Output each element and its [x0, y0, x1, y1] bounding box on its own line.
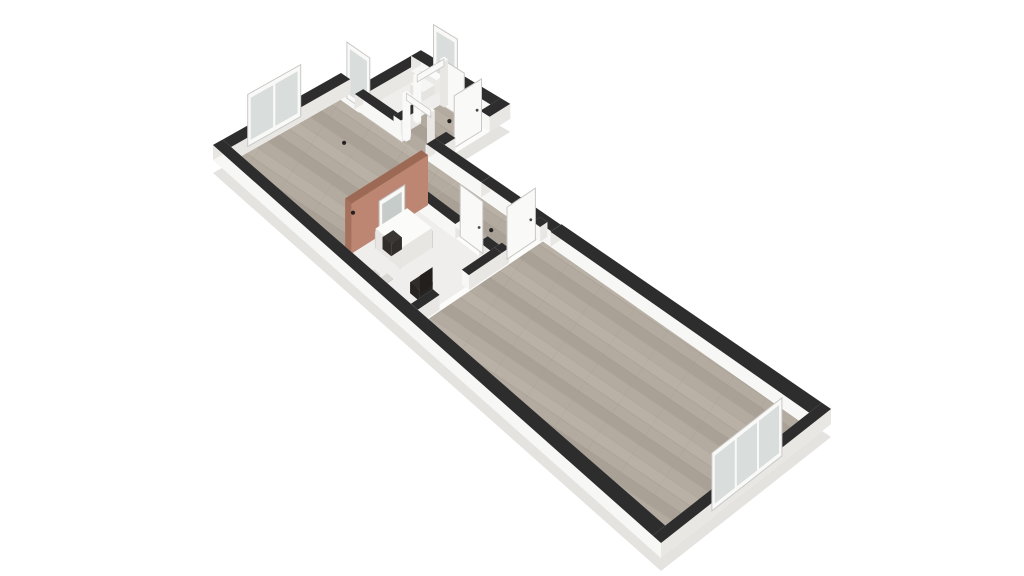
light-fixture-dot — [351, 211, 355, 215]
floorplan-3d-render — [0, 0, 1024, 576]
light-fixture-dot — [342, 141, 346, 145]
floorplan-3d-viewport[interactable] — [0, 0, 1024, 576]
study-door-leaf-handle — [478, 226, 481, 229]
living-door-leaf-handle — [529, 218, 532, 221]
accent-wall-face — [345, 198, 351, 253]
wc-doorway-frame-post-face — [444, 59, 448, 107]
light-fixture-dot — [447, 119, 451, 123]
light-fixture-dot — [489, 228, 493, 232]
entry-door-leaf-handle — [476, 109, 479, 112]
wc-doorway-frame-post-face — [417, 75, 421, 123]
bedroom-doorway-frame-post-face — [403, 93, 407, 142]
